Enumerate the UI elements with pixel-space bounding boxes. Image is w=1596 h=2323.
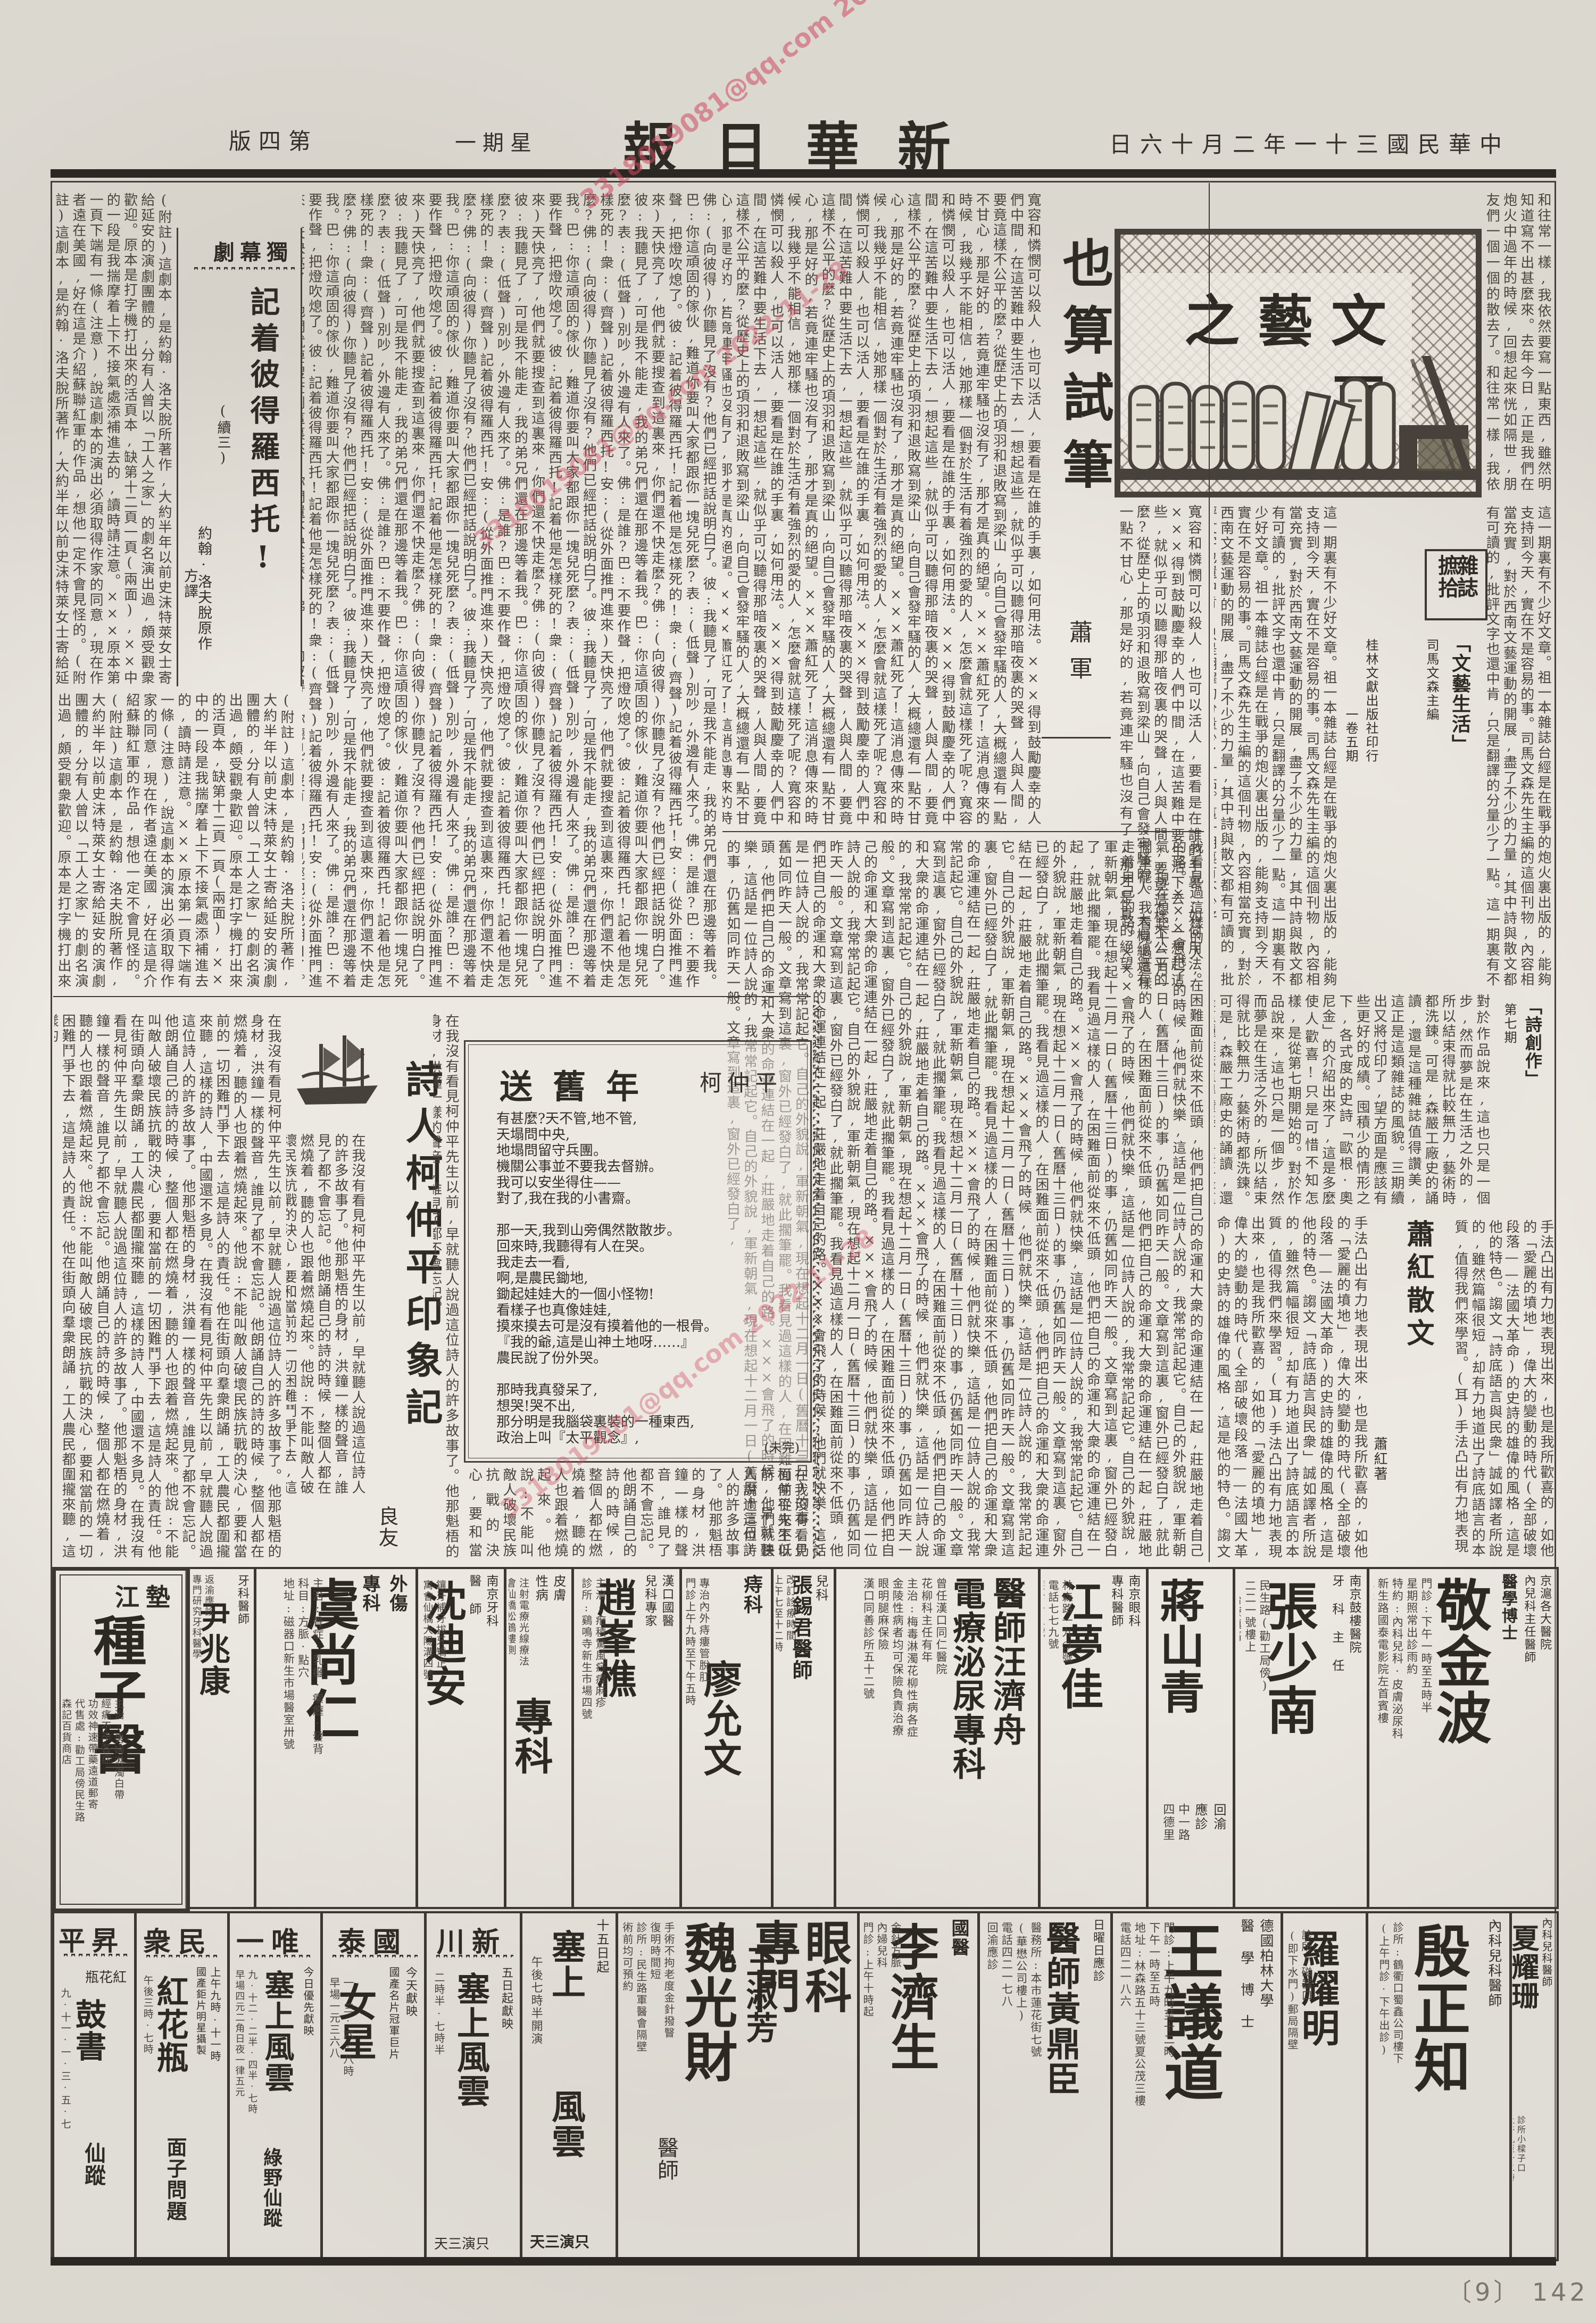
author-underline — [1042, 737, 1111, 739]
ad-doctor-zhangxijun: 兒科 張錫君醫師 改訂診療時間 上午七至十二時 下午三至六時 膠江路三里電話八八… — [771, 1567, 836, 1909]
decorative-wavy-line — [239, 1955, 314, 1960]
poem-text: 有甚麼?天不管,地不管, 天塌問中央, 地塌問留守兵團。 機關公事並不要我去督辦… — [496, 1111, 794, 1446]
ad-specialty: 電療泌尿專科 — [942, 1577, 990, 1901]
ad-details: 注射電療光線療法 會仙橋松鶴樓側 — [509, 1578, 530, 1897]
essay-title: 也算試筆 — [1047, 237, 1121, 588]
ad-doctor-yushangren: 外傷 專科 虞尚仁 主治:骨症·乳癰·瘰癧·發背 科目:方脈·點穴 地址:磁器口… — [254, 1567, 418, 1909]
theater-tagline: 上午九時·十一時 — [207, 1967, 223, 2147]
ad-doctor-xiayaoshan: 內科兒科醫師 夏耀珊 診所小樑子口 上午九至十二時 — [1510, 1911, 1559, 2261]
magazine-2-issue: 第七期 — [1500, 1003, 1519, 1099]
column-divider — [1209, 183, 1210, 1562]
ad-doctor-huangdingchen: 日曜日應診 醫師黃鼎臣 醫務所:本市蓮花街七號 (華懋公司樓上) 電話四二一七八… — [978, 1911, 1112, 2261]
magazine-publisher: 桂林文獻出版社印行 — [1362, 638, 1381, 873]
ad-header: 皮膚 性病 — [531, 1574, 567, 1691]
film-subtitle: 國產鉅片明星攝製 — [194, 1967, 208, 2190]
ad-details: 診所:鶴衢口蜀鑫公司樓下 (上午門診·下午出診) — [1373, 1922, 1404, 2252]
film-title: 鼓書 — [66, 1998, 111, 2137]
ad-header: 國醫 — [946, 1919, 972, 1993]
body-text-column: 在我沒有看見柯仲平先生以前,早就聽人說過這位詩人的許多故事了。他那魁梧的身材,洪… — [54, 1014, 282, 1559]
section-divider — [53, 996, 811, 997]
ad-doctor-liaoyunwen: 痔科 廖允文 專治內外痔瘻管脫肛 門診上午九時至下午五時 — [680, 1567, 773, 1909]
play-credit-translator: 方譯 — [179, 568, 200, 632]
ad-details: 診所小樑子口 上午九至十二時 — [1513, 2115, 1526, 2254]
ad-region: 墊江 — [115, 1578, 177, 1613]
edition-label: 第四版 — [229, 123, 318, 156]
archive-page-number: 〔9〕 142 — [1447, 2273, 1589, 2308]
body-text-column: 佛:(向彼得)你聽見了沒有?他們已經把話說明白了。彼:我聽見了,可是我不能走,我… — [302, 193, 717, 989]
theater-tagline: 今天獻映 — [402, 1967, 419, 2126]
theater-name: 國泰 — [338, 1920, 408, 1960]
theater-name: 唯一 — [236, 1920, 306, 1960]
magazine-column-label-box: 雜誌 摭拾 — [1425, 549, 1487, 620]
theater-xinchuan: 新川 五日起獻映 塞上風雲 二時半·七時半 只演三天 — [425, 1911, 522, 2261]
ad-doctor-yinzhengzhi: 內科兒科醫師 殷正知 診所:鶴衢口蜀鑫公司樓下 (上午門診·下午出診) — [1366, 1911, 1511, 2261]
next-film-title: 綠野仙蹤 — [257, 2147, 285, 2254]
ticket-price: 早場一元三六八 — [327, 1977, 341, 2222]
ticket-price: 早場四元二角日夜一律五元 — [233, 1970, 245, 2236]
theater-name: 昇平 — [59, 1920, 124, 1958]
ad-details: 主治:疳積驚風痧痘麻疹 診所:鷄鳴寺新生市場四號 — [577, 1578, 607, 1897]
ad-details: 民生路(勸工局傍) 二二一號樓上 (治療鎮痛) — [1240, 1580, 1271, 1894]
poem-author: 柯仲平 — [700, 1065, 783, 1098]
ad-doctor-name: 殷正知 — [1396, 1922, 1478, 2252]
weekday-label: 星期一 — [455, 126, 538, 156]
next-film-title: 面子問題 — [161, 2137, 190, 2254]
ad-header: 南京眼科 專科醫師 — [1108, 1574, 1142, 1894]
literary-page-header-box: 文藝之頁 第三一期 — [1115, 229, 1482, 497]
magazine-title-1: 「文藝生活」 — [1446, 633, 1474, 803]
theater-tagline: 五日起獻映 — [497, 1967, 514, 2126]
ad-details: 曾任漢口同仁醫院 花柳科主任有年 主治:梅毒淋濁花柳性病各症 金陵性病者均可保險… — [842, 1578, 948, 1897]
body-text-column: 和往常一樣,我依然要寫一點東西,雖然明知道寫不出甚麼來。去年今日,正是我們在炮火… — [1487, 193, 1552, 492]
ad-details: 手術不拘老度金針撥瞖 復明時間短 診所:民生路軍醫會隔壁 術前均可預約 — [622, 1922, 676, 2252]
ad-eye-doctor-jiangmengjia: 南京眼科 專科醫師 江夢佳 林森路一九○號 電話七七九號 應診十五號 — [1038, 1567, 1148, 1909]
play-continuation-mark: (續三) — [213, 403, 233, 488]
theater-name: 新川 — [437, 1920, 507, 1960]
decorative-wavy-line — [332, 1955, 418, 1960]
ad-details: 醫務所:本市蓮花街七號 (華懋公司樓上) 電話四二一七八 回渝應診 — [984, 1922, 1043, 2252]
body-text-column: (附註)這劇本,是約翰·洛夫脫所著作,大約半年以前史沫特萊女士寄給延安的演劇團體… — [54, 693, 295, 989]
essay-author: 蕭軍 — [1061, 620, 1095, 710]
body-text-column: 在我沒有看見柯仲平先生以前,早就聽人說過這位詩人的許多故事了。他那魁梧的身材,洪… — [468, 1467, 809, 1558]
decorative-wavy-line — [64, 1954, 129, 1959]
bottom-rule — [51, 2257, 1556, 2266]
impressions-author: 良友 — [372, 1506, 402, 1564]
body-text-column: 手法凸出有力地表現出來,也是我所歡喜的,如他的「愛麗的墳地」,偉大的變動的時代(… — [1214, 1216, 1368, 1559]
showtimes: 二時半·七時半 — [432, 1972, 446, 2195]
ad-doctor-wangjizhou: 醫師汪濟舟 電療泌尿專科 曾任漢口同仁醫院 花柳科主任有年 主治:梅毒淋濁花柳性… — [834, 1567, 1040, 1909]
ad-seed-doctor: 墊江 種子醫 主治:男婦淋濁白帶 經痛不孕各症 功效神速帶藥遠道郵寄 代售處:勸… — [52, 1567, 190, 1912]
xiaohong-essay-subhead: 蕭紅散文 — [1398, 1219, 1438, 1379]
ad-details: 鑲牙補牙拔牙矯正 寓會仙橋大陽溝四號 — [420, 1580, 447, 1894]
ad-header: 回渝 應診 — [1191, 1803, 1228, 1899]
bookshelf-illustration — [1120, 356, 1476, 480]
ad-header: 日曜日應診 — [1089, 1919, 1106, 2078]
ad-header: 德國柏林大學 醫 學 博 士 — [1236, 1919, 1275, 2249]
film-title-part1: 塞上 — [541, 1929, 590, 2089]
showtimes: 九·十一·一·三·五·七 — [59, 1988, 72, 2243]
film-title-secondary: 紅花瓶 — [85, 1967, 127, 1986]
ad-header: 內科兒科醫師 — [1484, 1919, 1504, 2249]
ad-dentist-zhangshaonan: 南京鼓樓醫院 牙 科 主 任 張少南 民生路(勸工局傍) 二二一號樓上 (治療鎮… — [1233, 1567, 1369, 1909]
body-text-column: 對於作品說來,這也只是一個步,然而夢是在生活之外的,所以結束得就比較無力,藝術時… — [1214, 994, 1491, 1206]
decorative-wavy-line — [436, 1955, 513, 1960]
theater-minzhong: 民衆 上午九時·十一時 國產鉅片明星攝製 紅花瓶 面子問題 午後三時·七時 — [135, 1911, 229, 2261]
ad-times: 午後七時半開演 — [528, 1956, 543, 2169]
date-line: 中華民國三十一年二月十六日 — [1109, 127, 1510, 159]
ad-doctor-zhaofengqiao: 漢口國醫 兒科專家 趙峯樵 主治:疳積驚風痧痘麻疹 診所:鷄鳴寺新生市場四號 — [572, 1567, 681, 1909]
ad-dentist-yinzhaokang: 牙科醫師 尹兆康 返渝應診 專門研究牙科醫學 歷任醫院牙科主任 應診時間九至十一… — [185, 1567, 256, 1909]
theater-note: 只演三天 — [434, 2233, 489, 2253]
poem-continuation-note: (未完) — [764, 1437, 800, 1456]
body-text-column: (附註)這劇本,是約翰·洛夫脫所著作,大約半年以前史沫特萊女士寄給延安的演劇團體… — [54, 193, 172, 685]
ad-doctor-name: 醫師黃鼎臣 — [1036, 1921, 1085, 2253]
boat-illustration — [292, 1026, 383, 1107]
ad-header: 京滬各大醫院 內兒科主任醫師 — [1521, 1574, 1552, 1899]
ad-details: 主治:男婦淋濁白帶 經痛不孕各症 功效神速帶藥遠道郵寄 代售處:勸工局傍民生路 … — [61, 1698, 125, 1895]
theater-name: 民衆 — [143, 1920, 213, 1960]
ad-doctor-name-2: 王淑芳 — [736, 1945, 783, 2222]
ad-dentist-shendian: 南京牙科 醫 師 沈迪安 鑲牙補牙拔牙矯正 寓會仙橋大陽溝四號 — [416, 1567, 506, 1909]
play-title: 記着彼得羅西托! — [242, 286, 285, 675]
showtimes: 一·三·六·八時 — [341, 1977, 355, 2201]
decorative-wavy-line — [146, 1955, 221, 1960]
ad-skin-clinic: 皮膚 性病 專科 注射電療光線療法 會仙橋松鶴樓側 — [504, 1567, 573, 1909]
film-title-part2: 風雲 — [541, 2089, 590, 2249]
body-text-column: 這一期裏有不少好文章。祖一本雜誌台經是在戰爭的炮火裏出版的,能夠支持到今天,實在… — [1214, 505, 1337, 987]
ad-details: 門診:下午一時至五時半 星期照常出診雨約 特約:內科兒科·皮膚泌尿科 新生路國泰… — [1374, 1578, 1433, 1897]
decorative-wavy-divider — [813, 1001, 819, 1559]
poem-title: 送舊年 — [500, 1060, 659, 1108]
theater-guotai: 國泰 今天獻映 國產名片冠軍巨片 女星 一·三·六·八時 早場一元三六八 — [321, 1911, 426, 2261]
ad-details: 專治內外痔瘻管脫肛 門診上午九時至下午五時 — [685, 1578, 711, 1897]
ad-details: 返渝應診 專門研究牙科醫學 歷任醫院牙科主任 應診時間九至十一時二至四時 星期停… — [189, 1574, 215, 1902]
magazine-credits: 司馬文森主編 — [1383, 638, 1442, 862]
body-text-column: 手法凸出有力地表現出來,也是我所歡喜的,如他的「愛麗的墳地」,偉大的變動的時代(… — [1450, 1219, 1555, 1558]
ad-doctor-luoyaoming: 羅耀明 診所:磁器口 (即下水門)郵局隔壁 — [1281, 1911, 1368, 2261]
header-rule — [51, 169, 1556, 178]
body-text-column: 這一期裏有不少好文章。祖一本雜誌台經是在戰爭的炮火裏出版的,能夠支持到今天,實在… — [1487, 505, 1552, 987]
decorative-wavy-line — [194, 267, 295, 272]
play-title-box: 獨幕劇 記着彼得羅西托! (續三) 約翰·洛夫脫原作 方譯 — [177, 228, 302, 686]
ad-details: 主治:骨症·乳癰·瘰癧·發背 科目:方脈·點穴 地址:磁器口新生市場醫室卅號 — [261, 1578, 325, 1897]
ad-doctor-jingjinbo: 京滬各大醫院 內兒科主任醫師 醫學博士 敬金波 門診:下午一時至五時半 星期照常… — [1367, 1567, 1559, 1909]
ad-eye-clinic-weiguangcai: 眼科 專門 魏光財 王淑芳 醫師 手術不拘老度金針撥瞖 復明時間短 診所:民生路… — [616, 1911, 859, 2261]
ad-doctor-name: 蔣山青 — [1147, 1578, 1211, 1828]
ad-stage-play-saishangfengyun: 十五日起 塞上 風雲 午後七時半開演 只演三天 — [520, 1911, 618, 2261]
body-text-column: 在我沒有看見柯仲平先生以前,早就聽人說過這位詩人的許多故事了。他那魁梧的身材,洪… — [433, 1014, 460, 1559]
ad-details: 診所:磁器口 (即下水門)郵局隔壁 — [1286, 1929, 1313, 2249]
film-title: 塞上風雲 — [256, 1970, 299, 2145]
magazine-label-left: 摭拾 — [1431, 554, 1462, 599]
xiaohong-author: 蕭紅著 — [1370, 1437, 1390, 1522]
ad-degree: 醫學博士 — [1496, 1573, 1519, 1664]
ad-header: 痔科 — [738, 1574, 766, 1660]
film-title: 塞上風雲 — [446, 1972, 494, 2201]
magazine-issue: 一卷五期 — [1342, 708, 1360, 825]
ad-details: 門診:上午九時至十二時 下午一時至五時 地址:林森路五十三號夏公茂三樓 電話四二… — [1117, 1922, 1176, 2252]
body-text-column: 寬容和憐憫可以殺人,也可以活人,要看是在誰的手裏,如何用法。×××得到鼓勵慶幸的… — [722, 193, 1042, 826]
film-title-extra: 仙蹤 — [78, 2142, 109, 2238]
ad-note: 只演三天 — [530, 2230, 589, 2252]
newspaper-scan-page: { "page": { "masthead": "新華日報", "date_li… — [0, 0, 1596, 2323]
play-genre: 獨幕劇 — [213, 235, 293, 266]
ad-header: 南京鼓樓醫院 牙 科 主 任 — [1328, 1574, 1362, 1894]
ad-header: 牙科醫師 — [234, 1574, 251, 1713]
showtimes: 午後三時·七時 — [141, 1975, 154, 2225]
ad-details: 中一路 四德里 — [1153, 1803, 1190, 1899]
ad-doctor-lijisheng: 國醫 李濟生 金針方脈 內婦兒科 門診:上午十時起 中一路一四○號 — [858, 1911, 979, 2261]
poem-box: 送舊年 柯仲平 有甚麼?天不管,地不管, 天塌問中央, 地塌問留守兵團。 機關公… — [464, 1040, 812, 1463]
theater-shengping: 昇平 紅花瓶 鼓書 仙蹤 九·十一·一·三·五·七 — [52, 1911, 136, 2261]
ad-details: 改訂診療時間 上午七至十二時 下午三至六時 膠江路三里電話八八二 — [776, 1574, 797, 1902]
body-text-column: 在我沒有看見柯仲平先生以前,早就聽人說過這位詩人的許多故事了。他那魁梧的身材,洪… — [286, 1133, 366, 1495]
ad-header: 漢口國醫 兒科專家 — [641, 1574, 675, 1899]
magazine-title-2: 「詩創作」 — [1520, 998, 1545, 1136]
ad-details: 林森路一九○號 電話七七九號 應診十五號 — [1044, 1580, 1074, 1894]
theater-weiyi: 唯一 今日優先獻映 塞上風雲 綠野仙蹤 九·十二·二半·四半·七時 早場四元二角… — [228, 1911, 322, 2261]
section-divider — [722, 831, 1204, 832]
ad-tagline: 十五日起 — [593, 1919, 611, 2068]
ad-doctor-jiangshanqing: 蔣山青 回渝 應診 中一路 四德里 — [1146, 1567, 1235, 1909]
showtimes: 九·十二·二半·四半·七時 — [246, 1970, 258, 2220]
ad-details: 金針方脈 內婦兒科 門診:上午十時起 中一路一四○號 — [864, 1922, 902, 2252]
film-subtitle: 國產名片冠軍巨片 — [386, 1967, 402, 2190]
ad-doctor-wangyidao: 德國柏林大學 醫 學 博 士 王議道 門診:上午九時至十二時 下午一時至五時 地… — [1111, 1911, 1283, 2261]
theater-tagline: 今日優先獻映 — [301, 1967, 316, 2147]
